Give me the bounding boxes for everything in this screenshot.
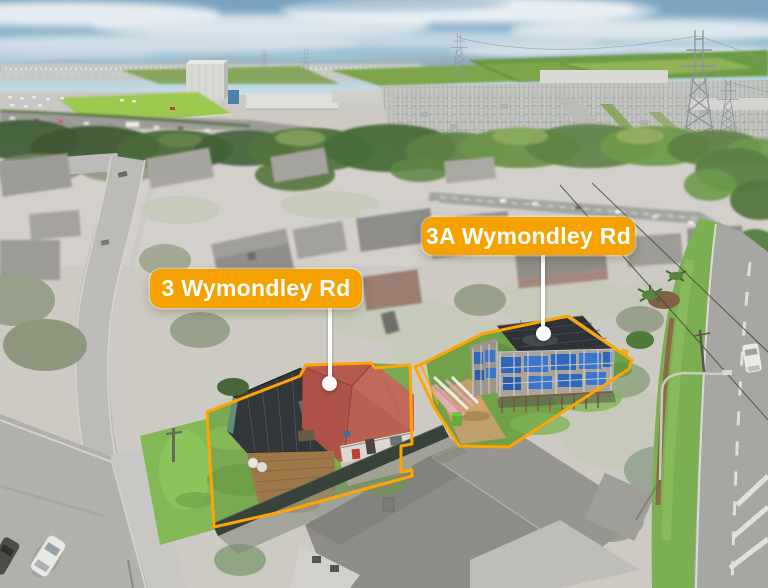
aerial-photo	[0, 0, 768, 588]
wheelie-bin	[352, 449, 361, 460]
callout-3a-label: 3A Wymondley Rd	[426, 223, 631, 250]
aerial-photo-stage	[0, 0, 768, 588]
callout-3-wymondley: 3 Wymondley Rd	[150, 269, 362, 308]
callout-3-label: 3 Wymondley Rd	[161, 275, 350, 302]
marker-dot-3	[322, 376, 337, 391]
leader-line-3a	[541, 254, 545, 327]
portaloo	[452, 412, 462, 426]
leader-line-3	[328, 307, 332, 378]
marker-dot-3a	[536, 326, 551, 341]
callout-3a-wymondley: 3A Wymondley Rd	[422, 217, 635, 255]
